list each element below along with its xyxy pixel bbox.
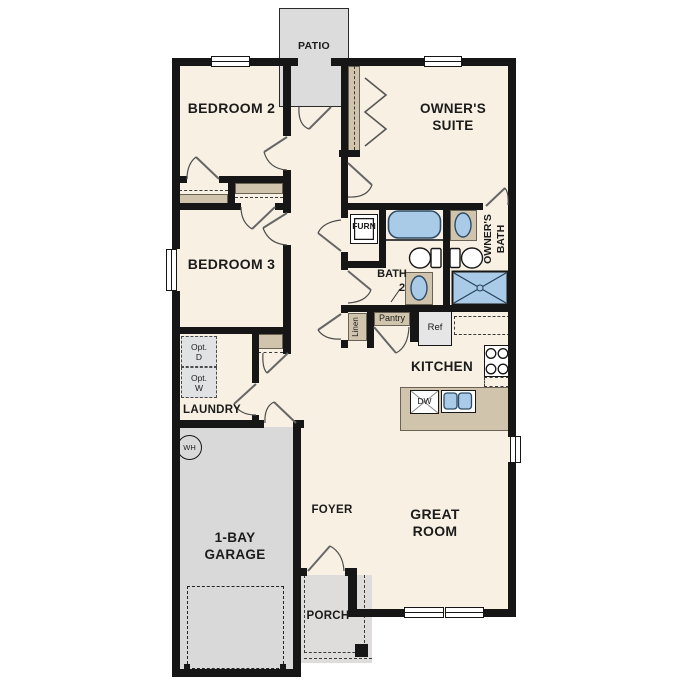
kitchen-label: KITCHEN [402,358,482,375]
wall-segment [443,203,450,312]
wall-segment [252,334,259,383]
foyer-label: FOYER [301,504,363,516]
bath2-label-line2: 2 [381,282,423,294]
bath2-label-line1: BATH [371,268,413,280]
garage-door-post [280,664,286,670]
floor-plan: Opt. D Opt. W WH [0,0,687,687]
wall-segment [367,308,374,348]
wall-segment [293,568,307,576]
window [424,56,462,67]
closet-shelf [258,334,283,349]
wall-segment [508,462,516,616]
owners-bath-label-line1: OWNER'S [482,199,495,279]
opt-washer-label-line2: W [195,383,203,393]
wall-segment [252,415,259,420]
closet-shelf [235,183,283,194]
bedroom3-label: BEDROOM 3 [172,256,291,273]
kitchen-sink-box [441,390,476,413]
wall-segment [172,669,301,677]
wall-segment [172,58,180,249]
porch-column [355,644,368,657]
upper-cabinet-outline [484,377,509,387]
wall-segment [283,58,291,136]
laundry-label: LAUNDRY [173,404,251,416]
wall-segment [172,420,264,428]
owners-suite-label-line2: SUITE [392,117,514,134]
wall-segment [341,261,386,268]
window [510,436,521,463]
closet-rod [235,197,283,198]
furnace-label: FURN [350,221,378,231]
window [445,607,484,618]
wall-segment [296,420,304,428]
wall-segment [283,334,291,354]
wall-segment [341,340,348,348]
wall-segment [379,203,386,268]
closet-rod [179,190,228,191]
closet-rod [258,352,283,353]
pantry-label: Pantry [374,313,410,323]
upper-cabinet-outline [454,316,510,335]
opt-dryer-label-line2: D [196,352,202,362]
garage-label-line1: 1-BAY [175,529,295,546]
water-heater-icon: WH [177,435,202,460]
wall-segment [450,203,483,210]
wall-segment [341,203,445,210]
tub-platform-edge [386,239,443,241]
bedroom2-label: BEDROOM 2 [172,100,291,117]
wall-segment [484,609,516,617]
refrigerator-label: Ref [418,322,452,333]
closet-rod [354,66,355,155]
optional-washer-box: Opt. W [181,367,217,398]
garage-door-post [184,664,190,670]
garage-label-line2: GARAGE [175,546,295,563]
owners-bath-label: OWNER'S BATH [482,199,512,279]
dishwasher-label: DW [410,396,439,406]
owners-bath-vanity [450,210,477,241]
great-room-label-line2: ROOM [375,523,495,540]
porch-label: PORCH [297,610,359,622]
wall-segment [410,308,418,342]
patio-label: PATIO [281,40,347,52]
garage-door-outline [187,586,284,669]
water-heater-label: WH [183,443,196,452]
window [404,607,444,618]
wall-segment [172,291,180,677]
wall-segment [341,58,348,157]
wall-segment [228,176,235,210]
linen-label: Linen [351,311,363,343]
owners-suite-label-line1: OWNER'S [392,100,514,117]
porch-edge-outline [304,658,372,659]
wall-segment [172,176,187,183]
opt-dryer-label-line1: Opt. [191,342,207,352]
wall-segment [283,170,291,213]
window [211,56,250,67]
range-stove [484,345,509,377]
optional-dryer-box: Opt. D [181,336,217,367]
wall-segment [172,327,290,334]
great-room-label-line1: GREAT [375,506,495,523]
owners-bath-label-line2: BATH [495,199,508,279]
wall-segment [339,150,360,157]
opt-washer-label-line1: Opt. [191,373,207,383]
